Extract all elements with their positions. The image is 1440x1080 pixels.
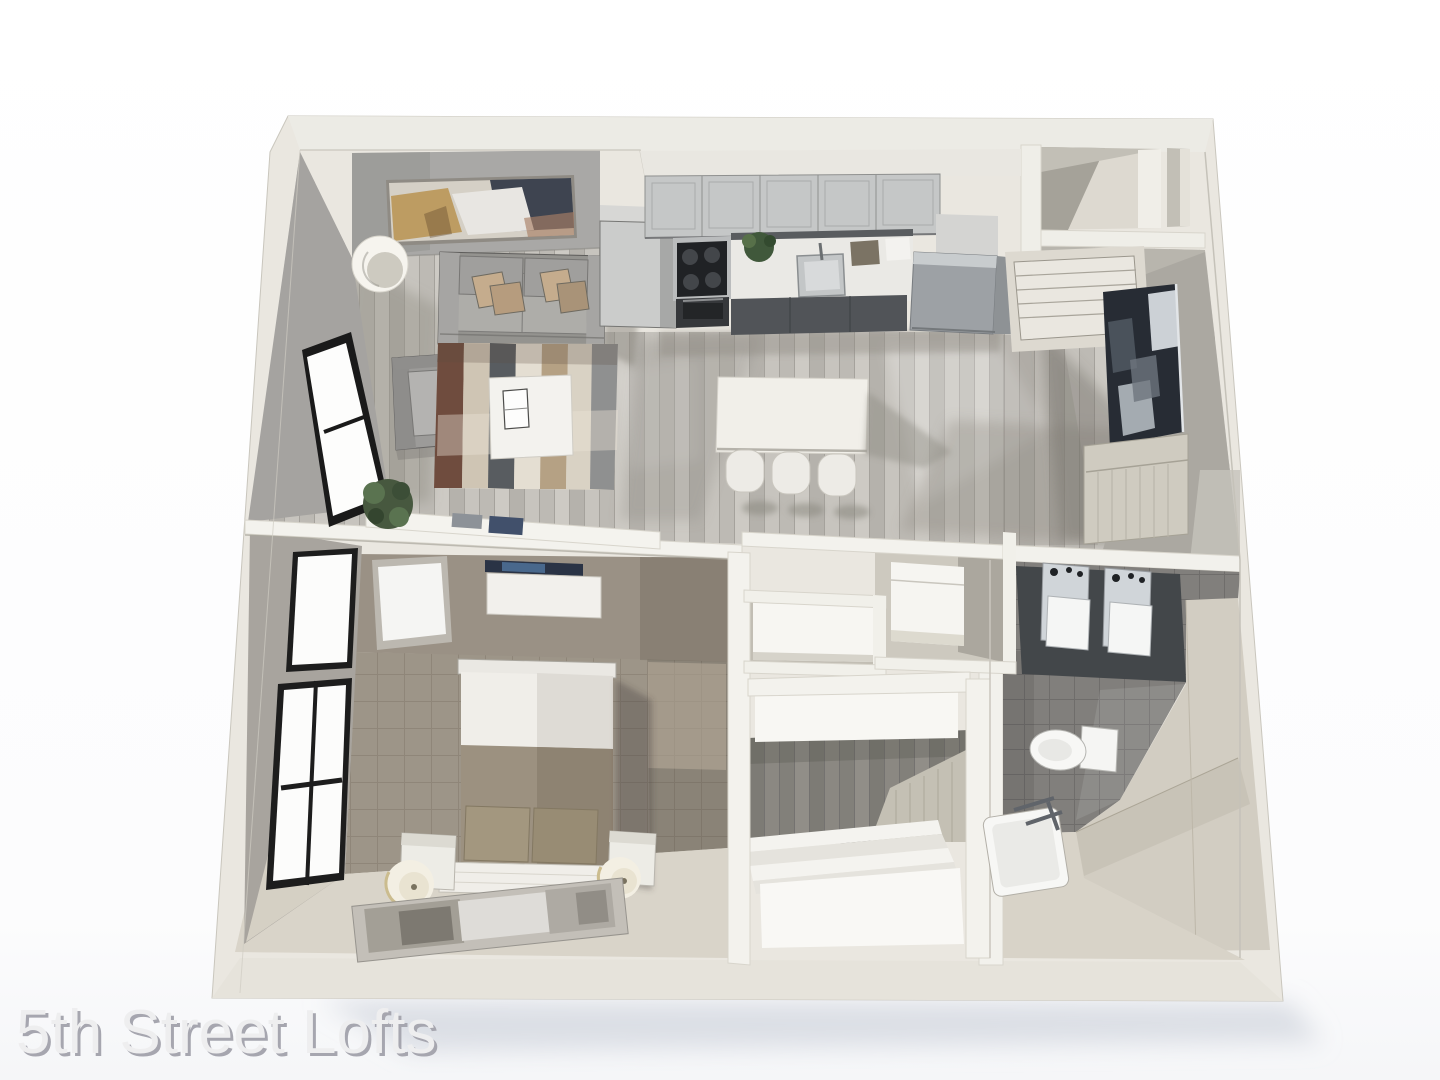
svg-text:5th Street Lofts: 5th Street Lofts [16,998,436,1067]
